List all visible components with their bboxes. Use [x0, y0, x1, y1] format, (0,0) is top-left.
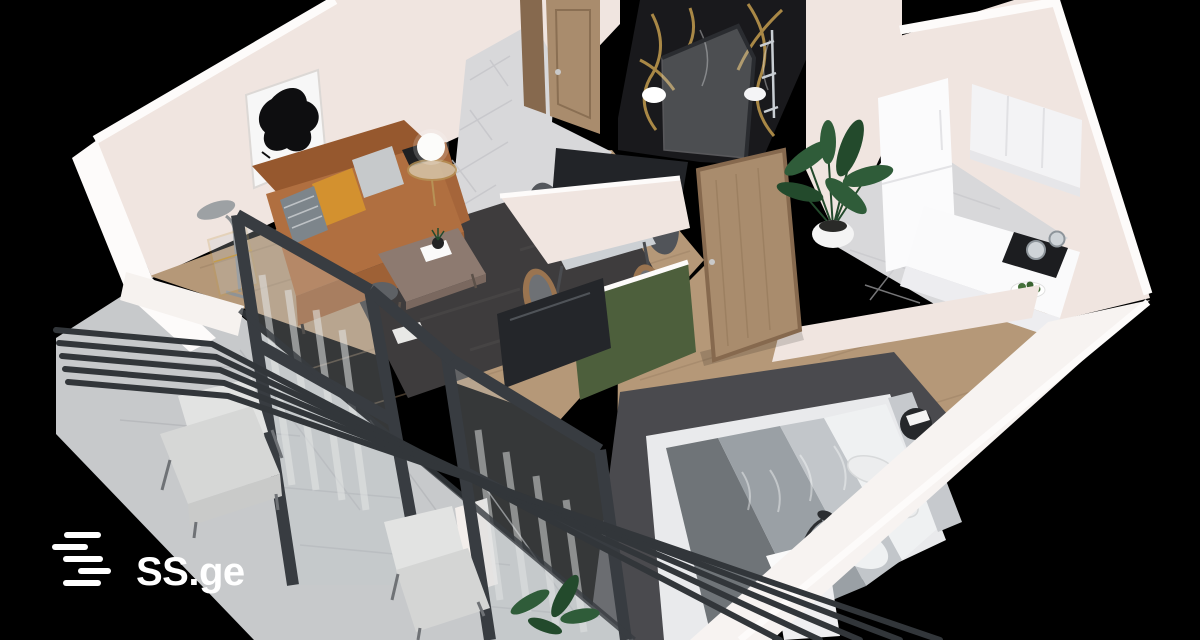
stripe-1	[64, 532, 101, 538]
sink	[642, 87, 666, 103]
stripe-3	[63, 556, 103, 562]
globe-lamp-glow	[413, 129, 449, 165]
pot-small	[1050, 232, 1065, 247]
entrance-door-panel	[546, 0, 600, 134]
stripe-5	[63, 580, 101, 586]
plant-leaf-6	[820, 120, 836, 164]
apartment-render: SS.ge	[0, 0, 1200, 640]
bedroom-door-panel	[698, 150, 800, 360]
stripe-4	[78, 568, 111, 574]
bedroom-door-handle	[709, 259, 715, 265]
entrance-door-handle	[555, 69, 561, 75]
plant-soil	[819, 220, 847, 232]
logo-text: SS.ge	[136, 550, 245, 594]
pot-large	[1027, 241, 1045, 259]
toilet	[744, 87, 766, 101]
render-canvas: SS.ge	[0, 0, 1200, 640]
entrance-door-frame	[520, 0, 546, 114]
stripe-2	[52, 544, 88, 550]
